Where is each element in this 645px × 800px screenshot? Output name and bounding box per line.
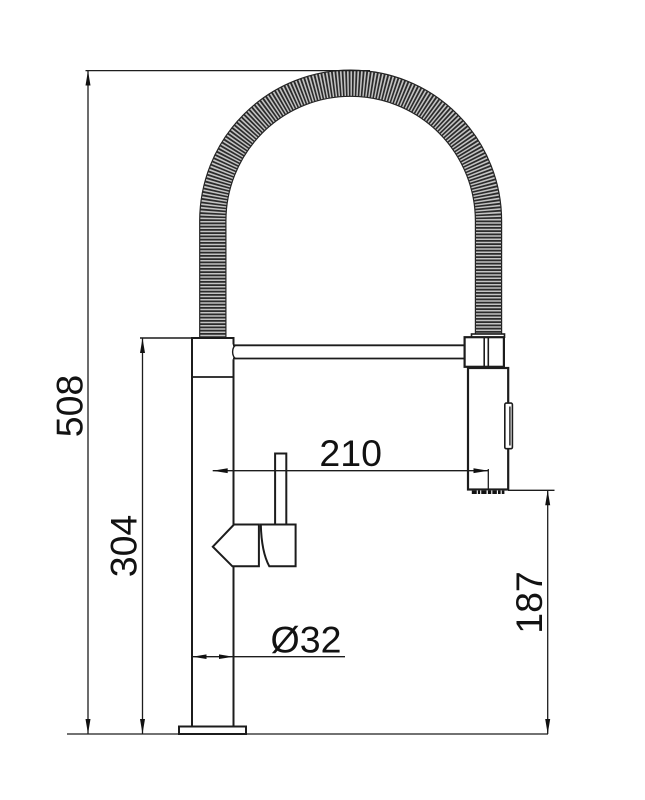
svg-text:187: 187: [508, 571, 550, 634]
svg-text:210: 210: [319, 432, 382, 474]
svg-text:304: 304: [103, 515, 145, 578]
svg-text:508: 508: [49, 375, 91, 438]
svg-text:Ø32: Ø32: [271, 619, 342, 661]
